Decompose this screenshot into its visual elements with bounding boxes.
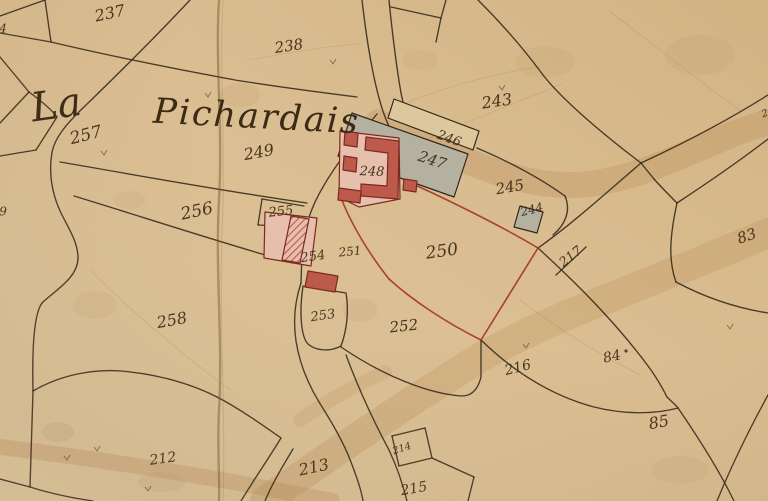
paper-stain [42, 422, 74, 442]
parcel-label-85: 85 [647, 411, 670, 433]
cadastral-map: LaPichardais2372382432572492462472482452… [0, 0, 768, 501]
paper-stain [114, 191, 146, 209]
building-248-annex-2 [343, 156, 357, 172]
parcel-label-248: 248 [358, 164, 384, 180]
building-248-annex-4 [403, 179, 417, 192]
paper-stain [402, 50, 438, 70]
place-name-la: La [27, 79, 84, 132]
paper-stain [665, 35, 735, 75]
paper-stain [73, 291, 117, 319]
parcel-label-251: 251 [337, 243, 362, 259]
parcel-label-252: 252 [388, 316, 419, 337]
paper-stain [652, 456, 708, 484]
survey-dot [624, 349, 627, 352]
parcel-label-4: 4 [0, 22, 7, 36]
map-canvas: LaPichardais2372382432572492462472482452… [0, 0, 768, 501]
parcel-label-9: 9 [0, 205, 7, 219]
building-248-annex-3 [338, 188, 361, 203]
parcel-label-255: 255 [267, 203, 294, 221]
